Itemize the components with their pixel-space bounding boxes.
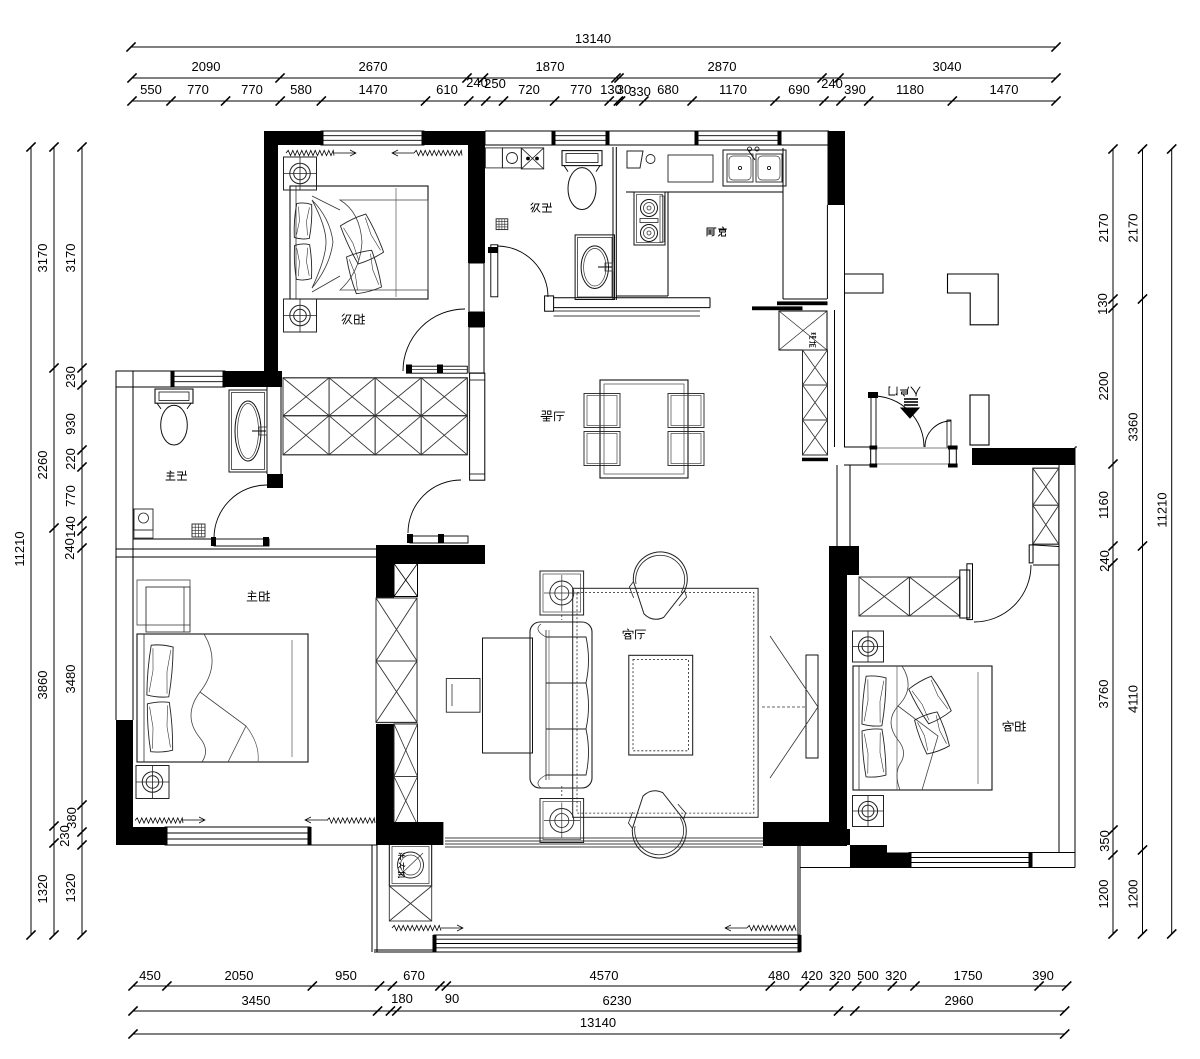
svg-text:1320: 1320 (63, 874, 78, 903)
svg-text:6230: 6230 (603, 993, 632, 1008)
svg-text:220: 220 (63, 448, 78, 470)
svg-text:2670: 2670 (359, 59, 388, 74)
svg-text:1180: 1180 (896, 82, 924, 97)
svg-text:680: 680 (657, 82, 679, 97)
svg-text:770: 770 (187, 82, 209, 97)
svg-text:950: 950 (335, 968, 357, 983)
svg-text:250: 250 (484, 76, 506, 91)
svg-text:390: 390 (844, 82, 866, 97)
svg-text:130: 130 (1095, 293, 1110, 315)
svg-text:180: 180 (391, 991, 413, 1006)
svg-text:3040: 3040 (933, 59, 962, 74)
svg-text:390: 390 (1032, 968, 1054, 983)
svg-text:3860: 3860 (35, 671, 50, 700)
svg-text:670: 670 (403, 968, 425, 983)
svg-text:3450: 3450 (242, 993, 271, 1008)
svg-text:420: 420 (801, 968, 823, 983)
svg-text:3360: 3360 (1126, 413, 1141, 442)
svg-text:770: 770 (63, 485, 78, 507)
svg-text:1470: 1470 (359, 82, 388, 97)
svg-text:2200: 2200 (1096, 372, 1111, 401)
svg-text:1160: 1160 (1096, 491, 1111, 519)
svg-text:240: 240 (62, 538, 77, 560)
svg-text:140: 140 (63, 516, 78, 538)
svg-text:2870: 2870 (708, 59, 737, 74)
svg-text:11210: 11210 (12, 531, 27, 566)
svg-text:930: 930 (63, 413, 78, 435)
svg-text:770: 770 (570, 82, 592, 97)
svg-text:2090: 2090 (192, 59, 221, 74)
svg-text:320: 320 (829, 968, 851, 983)
svg-text:450: 450 (139, 968, 161, 983)
svg-text:2260: 2260 (35, 451, 50, 480)
svg-text:770: 770 (241, 82, 263, 97)
svg-text:330: 330 (629, 84, 651, 99)
svg-text:3760: 3760 (1096, 680, 1111, 709)
svg-text:2170: 2170 (1126, 214, 1141, 243)
svg-text:1200: 1200 (1096, 880, 1111, 909)
svg-text:240: 240 (1097, 550, 1112, 572)
svg-text:610: 610 (436, 82, 458, 97)
svg-text:1170: 1170 (719, 82, 747, 97)
svg-text:3170: 3170 (35, 244, 50, 273)
svg-text:550: 550 (140, 82, 162, 97)
svg-text:3170: 3170 (63, 244, 78, 273)
svg-text:240: 240 (821, 76, 843, 91)
svg-text:2050: 2050 (225, 968, 254, 983)
svg-text:690: 690 (788, 82, 810, 97)
svg-text:230: 230 (57, 825, 72, 847)
svg-text:1750: 1750 (954, 968, 983, 983)
svg-text:2960: 2960 (945, 993, 974, 1008)
svg-text:90: 90 (445, 991, 459, 1006)
svg-text:1870: 1870 (536, 59, 565, 74)
svg-text:580: 580 (290, 82, 312, 97)
svg-text:350: 350 (1097, 830, 1112, 852)
svg-text:1320: 1320 (35, 875, 50, 904)
svg-text:1470: 1470 (990, 82, 1019, 97)
svg-text:500: 500 (857, 968, 879, 983)
svg-text:13140: 13140 (575, 31, 611, 46)
svg-text:11210: 11210 (1155, 492, 1170, 527)
svg-text:720: 720 (518, 82, 540, 97)
svg-text:13140: 13140 (580, 1015, 616, 1030)
svg-text:1200: 1200 (1126, 880, 1141, 909)
svg-text:4570: 4570 (590, 968, 619, 983)
svg-text:230: 230 (63, 366, 78, 388)
svg-text:3480: 3480 (63, 665, 78, 694)
svg-text:480: 480 (768, 968, 790, 983)
svg-text:320: 320 (885, 968, 907, 983)
svg-text:4110: 4110 (1126, 685, 1141, 713)
svg-text:2170: 2170 (1096, 214, 1111, 243)
